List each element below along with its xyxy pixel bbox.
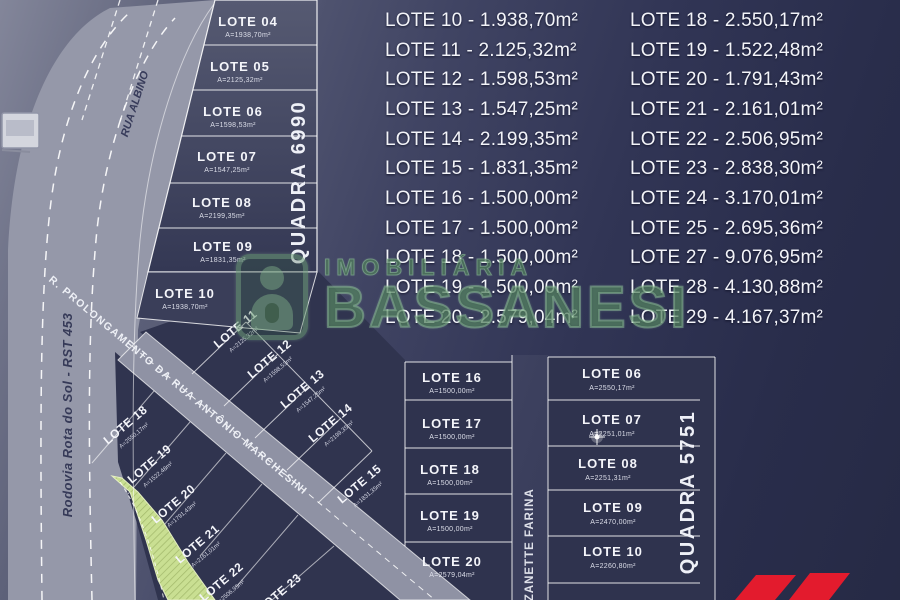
lot-list-item: LOTE 28 - 4.130,88m² (630, 273, 823, 303)
highway-label: Rodovia Rota do Sol - RST 453 (60, 312, 75, 517)
lot-name-label: LOTE 16 (422, 370, 482, 385)
lot-list-item: LOTE 24 - 3.170,01m² (630, 184, 823, 214)
lot-list-item: LOTE 13 - 1.547,25m² (385, 95, 578, 125)
lot-name-label: LOTE 07 (197, 149, 257, 164)
lot-list-item: LOTE 18 - 1.500,00m² (385, 244, 578, 274)
lot-list-right: LOTE 18 - 2.550,17m² LOTE 19 - 1.522,48m… (630, 6, 823, 333)
lot-name-label: LOTE 09 (583, 500, 643, 515)
lot-list-item: LOTE 21 - 2.161,01m² (630, 95, 823, 125)
quadra-6990-label: QUADRA 6990 (288, 100, 310, 265)
zanette-label: RUA LUCAS ZANETTE FARINA (524, 488, 536, 600)
lot-area-label: A=2470,00m² (590, 519, 636, 526)
lot-area-label: A=2251,31m² (585, 475, 631, 482)
red-chevron-logo (735, 573, 850, 600)
lot-list-item: LOTE 27 - 9.076,95m² (630, 244, 823, 274)
lot-area-label: A=1938,70m² (225, 32, 271, 39)
lot-area-label: A=2199,35m² (199, 213, 245, 220)
lot-name-label: LOTE 17 (422, 416, 482, 431)
lot-area-label: A=1831,35m² (200, 257, 246, 264)
lot-area-label: A=1500,00m² (427, 480, 473, 487)
lot-name-label: LOTE 04 (218, 14, 278, 29)
lot-area-label: A=2579,04m² (429, 572, 475, 579)
lot-area-label: A=1938,70m² (162, 304, 208, 311)
lot-area-label: A=1547,25m² (204, 167, 250, 174)
lot-list-item: LOTE 22 - 2.506,95m² (630, 125, 823, 155)
lot-list-item: LOTE 23 - 2.838,30m² (630, 154, 823, 184)
lot-list-item: LOTE 29 - 4.167,37m² (630, 303, 823, 333)
lot-list-item: LOTE 20 - 2.579,04m² (385, 303, 578, 333)
lot-area-label: A=2260,80m² (590, 563, 636, 570)
lot-name-label: LOTE 07 (582, 412, 642, 427)
lot-area-label: A=1500,00m² (427, 526, 473, 533)
lot-area-label: A=2550,17m² (589, 385, 635, 392)
plat-map-page: Rodovia Rota do Sol - RST 453 RUA ALBINO… (0, 0, 900, 600)
lot-name-label: LOTE 06 (203, 104, 263, 119)
lot-name-label: LOTE 08 (578, 456, 638, 471)
lot-list-item: LOTE 25 - 2.695,36m² (630, 214, 823, 244)
lot-name-label: LOTE 09 (193, 239, 253, 254)
lot-list-item: LOTE 10 - 1.938,70m² (385, 6, 578, 36)
lot-list-item: LOTE 15 - 1.831,35m² (385, 154, 578, 184)
truck-icon (2, 113, 39, 152)
lot-name-label: LOTE 08 (192, 195, 252, 210)
lot-list-item: LOTE 11 - 2.125,32m² (385, 36, 578, 66)
lot-name-label: LOTE 10 (155, 286, 215, 301)
lot-list-item: LOTE 19 - 1.522,48m² (630, 36, 823, 66)
lot-list-item: LOTE 20 - 1.791,43m² (630, 65, 823, 95)
lot-name-label: LOTE 05 (210, 59, 270, 74)
lot-list-item: LOTE 17 - 1.500,00m² (385, 214, 578, 244)
lot-name-label: LOTE 18 (420, 462, 480, 477)
lot-list-item: LOTE 18 - 2.550,17m² (630, 6, 823, 36)
lot-name-label: LOTE 06 (582, 366, 642, 381)
lot-list-item: LOTE 16 - 1.500,00m² (385, 184, 578, 214)
lot-area-label: A=1500,00m² (429, 388, 475, 395)
lot-list-item: LOTE 19 - 1.500,00m² (385, 273, 578, 303)
lot-list-item: LOTE 12 - 1.598,53m² (385, 65, 578, 95)
lot-name-label: LOTE 10 (583, 544, 643, 559)
lot-area-label: A=1598,53m² (210, 122, 256, 129)
lot-name-label: LOTE 19 (420, 508, 480, 523)
lot-list-left: LOTE 10 - 1.938,70m² LOTE 11 - 2.125,32m… (385, 6, 578, 333)
lot-area-label: A=1500,00m² (429, 434, 475, 441)
quadra-5751-label: QUADRA 5751 (677, 410, 699, 575)
lot-list-item: LOTE 14 - 2.199,35m² (385, 125, 578, 155)
lot-area-label: A=2125,32m² (217, 77, 263, 84)
lot-name-label: LOTE 20 (422, 554, 482, 569)
